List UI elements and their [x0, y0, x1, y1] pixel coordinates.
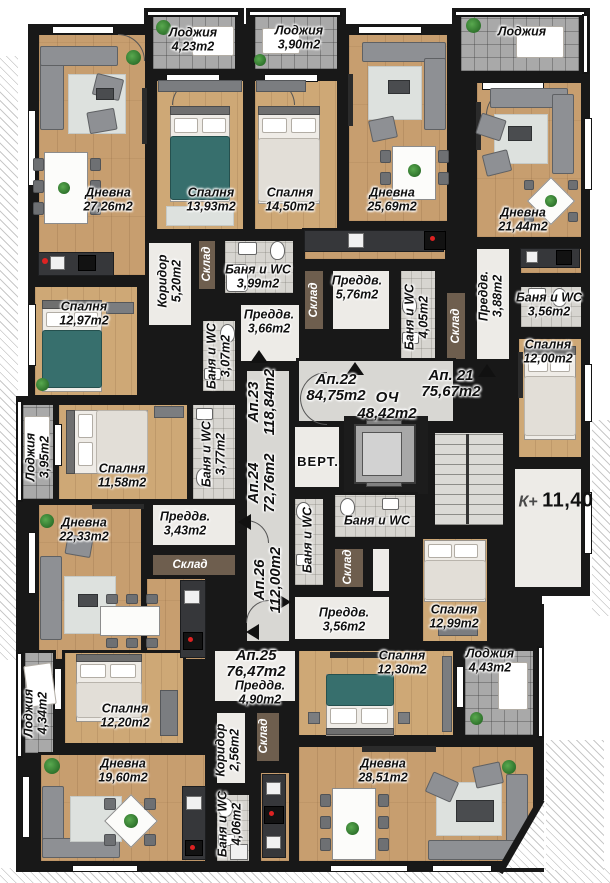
window — [330, 865, 408, 872]
kitchen-sink — [526, 251, 538, 263]
pillow — [174, 118, 198, 133]
chair — [106, 638, 118, 648]
label-ap24: Ап.2472,76m2 — [246, 453, 278, 512]
stove — [424, 231, 446, 250]
staircase-rail — [466, 434, 469, 524]
plant-icon — [126, 50, 141, 65]
stove-burner — [269, 811, 274, 816]
chair — [33, 180, 44, 193]
coffee-table — [388, 80, 410, 94]
label-spalnya-1299: Спалня12,99m2 — [429, 604, 478, 631]
plant-icon — [124, 814, 138, 828]
coffee-table — [508, 126, 532, 141]
bed-headboard — [66, 410, 75, 474]
entry-arrow-up-icon — [478, 364, 496, 377]
label-ap26: Ап.26112,00m2 — [252, 547, 284, 613]
kitchen-sink — [266, 782, 281, 795]
tv-unit — [92, 504, 144, 509]
window — [52, 26, 114, 34]
nightstand — [398, 712, 410, 724]
chair — [378, 794, 389, 807]
chair — [106, 594, 118, 604]
label-koridor-256: Коридор2,56m2 — [215, 723, 242, 776]
window — [584, 364, 592, 422]
window — [72, 865, 138, 872]
label-sklad-a: Склад — [201, 246, 213, 281]
tv-unit — [348, 74, 353, 126]
pillow — [262, 118, 287, 133]
label-dnevna-2569: Дневна25,69m2 — [367, 187, 416, 214]
label-loggia-434: Лоджия4,34m2 — [23, 689, 50, 737]
coffee-table — [456, 800, 494, 822]
bed-blanket — [424, 560, 486, 600]
label-ap21: Ап. 2175,67m2 — [421, 368, 480, 400]
sofa — [424, 58, 446, 130]
sofa — [40, 556, 62, 640]
sofa — [40, 46, 118, 66]
dresser — [154, 406, 184, 418]
label-sklad-b: Склад — [308, 282, 320, 317]
tv-unit — [362, 746, 436, 752]
kitchen-counter — [304, 230, 444, 252]
plant-icon — [502, 760, 516, 774]
chair — [320, 794, 331, 807]
label-preddv-356: Преддв.3,56m2 — [319, 607, 369, 634]
chair — [146, 638, 158, 648]
label-banya-c1: Баня и WC — [301, 507, 315, 573]
chair — [568, 212, 578, 222]
coffee-table — [96, 88, 114, 100]
label-dnevna-2233: Дневна22,33m2 — [59, 517, 108, 544]
staircase — [432, 430, 506, 528]
bed-headboard — [258, 106, 320, 115]
chair — [126, 594, 138, 604]
nightstand — [106, 302, 134, 314]
bed-headboard — [76, 654, 142, 662]
dining-table — [100, 606, 160, 636]
plant-icon — [44, 758, 60, 774]
chair — [146, 594, 158, 604]
wardrobe — [160, 690, 178, 736]
chair — [320, 816, 331, 829]
dishwasher — [266, 836, 281, 849]
chair — [320, 838, 331, 851]
dresser — [256, 80, 306, 92]
chair — [104, 798, 116, 810]
kitchen-sink — [50, 256, 65, 270]
entry-arrow-left-icon — [238, 514, 251, 530]
exterior-hatch-right — [592, 420, 610, 616]
pillow — [291, 118, 316, 133]
pillow — [454, 544, 478, 558]
tv-unit — [142, 88, 147, 144]
label-sklad-e: Склад — [342, 549, 354, 584]
label-loggia-tr: Лоджия — [498, 25, 546, 39]
pillow — [330, 708, 357, 724]
chair — [378, 816, 389, 829]
window — [22, 776, 30, 838]
label-spalnya-1297: Спалня12,97m2 — [59, 301, 108, 328]
stove-burner — [42, 258, 48, 264]
window — [432, 865, 492, 872]
plant-icon — [408, 164, 421, 177]
bed-headboard — [170, 106, 230, 115]
loggia-railing — [454, 10, 586, 17]
kitchen-sink — [184, 590, 200, 604]
plant-icon — [470, 712, 483, 725]
pillow — [78, 414, 93, 438]
label-sklad-c: Склад — [450, 308, 462, 343]
label-preddv-343: Преддв.3,43m2 — [160, 511, 210, 538]
label-banya-356: Баня и WC3,56m2 — [516, 292, 582, 319]
level-prefix: К+ — [518, 494, 537, 511]
entry-arrow-left-icon — [246, 624, 259, 640]
plant-icon — [545, 195, 557, 207]
plant-icon — [58, 182, 70, 194]
stove-burner — [188, 637, 193, 642]
stove — [183, 632, 203, 650]
chair — [438, 172, 449, 185]
chair — [90, 158, 101, 171]
label-banya-406: Баня и WC4,06m2 — [217, 791, 244, 857]
level-value: 11,40 — [542, 490, 593, 512]
plant-icon — [466, 18, 481, 33]
label-spalnya-1450: Спалня14,50m2 — [265, 187, 314, 214]
pillow — [202, 118, 226, 133]
window — [584, 118, 592, 190]
wardrobe — [158, 80, 242, 92]
wardrobe — [442, 656, 452, 732]
stove — [264, 806, 284, 824]
chair — [380, 150, 391, 163]
label-spalnya-1220: Спалня12,20m2 — [100, 703, 149, 730]
elevator-car — [362, 432, 402, 476]
stove-burner — [190, 845, 195, 850]
label-sklad-f: Склад — [258, 718, 270, 753]
label-banya-c2: Баня и WC — [344, 514, 410, 528]
exterior-hatch-bottom-right — [546, 740, 604, 870]
label-ap23: Ап.23118,84m2 — [246, 369, 278, 435]
chair — [104, 834, 116, 846]
balcony-door — [456, 666, 464, 708]
bed-blanket — [524, 376, 576, 436]
label-banya-307: Баня и WC3,07m2 — [206, 323, 233, 389]
sofa — [552, 94, 574, 174]
chair — [380, 172, 391, 185]
label-vert: ВЕРТ. — [297, 455, 339, 469]
chair — [144, 834, 156, 846]
sink-icon — [382, 498, 399, 510]
label-spalnya-1158: Спалня11,58m2 — [98, 463, 146, 490]
label-dnevna-1960: Дневна19,60m2 — [98, 758, 147, 785]
level-mark: К+ 11,40 — [518, 490, 593, 513]
nightstand — [308, 712, 320, 724]
label-spalnya-1230: Спалня12,30m2 — [377, 650, 426, 677]
chair — [33, 158, 44, 171]
pillow — [361, 708, 388, 724]
room-preddv-356-ext — [370, 546, 392, 594]
stove — [556, 250, 572, 265]
toilet-icon — [270, 241, 285, 260]
plant-icon — [36, 378, 49, 391]
window — [28, 304, 36, 366]
label-sklad-d: Склад — [172, 559, 207, 571]
label-dnevna-2726: Дневна27,26m2 — [83, 187, 132, 214]
plant-icon — [346, 822, 359, 835]
label-spalnya-1200: Спалня12,00m2 — [523, 339, 572, 366]
bed-blanket — [42, 330, 102, 388]
kitchen-sink — [186, 796, 202, 810]
label-banya-377: Баня и WC3,77m2 — [201, 421, 228, 487]
chair — [144, 798, 156, 810]
label-loggia-395: Лоджия3,95m2 — [25, 433, 52, 481]
pillow — [110, 664, 136, 678]
pillow — [80, 664, 106, 678]
pillow — [428, 544, 452, 558]
pillow — [78, 442, 93, 466]
label-spalnya-1393: Спалня13,93m2 — [186, 187, 235, 214]
label-dnevna-2851: Дневна28,51m2 — [358, 758, 407, 785]
label-preddv-490: Преддв.4,90m2 — [235, 680, 285, 707]
chair — [378, 838, 389, 851]
kitchen-sink — [348, 233, 364, 248]
label-preddv-366: Преддв.3,66m2 — [244, 309, 294, 336]
loggia-railing — [248, 10, 342, 17]
label-koridor-520: Коридор5,20m2 — [157, 254, 184, 307]
sink-icon — [196, 408, 213, 420]
window — [28, 110, 36, 186]
window — [28, 532, 36, 594]
chair — [524, 180, 534, 190]
stove — [78, 255, 96, 271]
tv-unit — [518, 352, 523, 398]
elevator-rail — [366, 482, 402, 487]
stove-burner — [430, 236, 435, 241]
plant-icon — [254, 54, 266, 66]
label-loggia-390: Лоджия3,90m2 — [275, 25, 323, 52]
loggia-railing — [16, 400, 23, 502]
label-och: ОЧ48,42m2 — [357, 390, 416, 422]
bed-blanket — [326, 674, 394, 706]
window — [358, 26, 422, 34]
bed-headboard — [326, 728, 394, 735]
coffee-table — [78, 594, 98, 607]
plant-icon — [40, 514, 54, 528]
balcony-door — [54, 424, 62, 466]
chair — [126, 638, 138, 648]
loggia-railing — [537, 646, 544, 738]
loggia-railing — [582, 14, 589, 74]
chair — [568, 180, 578, 190]
label-ap25: Ап.2576,47m2 — [226, 648, 285, 680]
label-loggia-423: Лоджия4,23m2 — [169, 27, 217, 54]
label-dnevna-2144: Дневна21,44m2 — [498, 207, 547, 234]
label-preddv-388: Преддв.3,88m2 — [478, 271, 505, 321]
label-preddv-576: Преддв.5,76m2 — [332, 275, 382, 302]
room-landing — [512, 466, 584, 590]
label-banya-399: Баня и WC3,99m2 — [225, 264, 291, 291]
sink-icon — [238, 242, 257, 255]
chair — [438, 150, 449, 163]
label-banya-405: Баня и WC4,05m2 — [404, 284, 431, 350]
entry-arrow-up-icon — [250, 350, 268, 363]
label-loggia-443: Лоджия4,43m2 — [466, 648, 514, 675]
loggia-railing — [146, 10, 240, 17]
floor-plan: Лоджия4,23m2 Дневна27,26m2 Спалня13,93m2… — [0, 0, 610, 883]
chair — [33, 202, 44, 215]
